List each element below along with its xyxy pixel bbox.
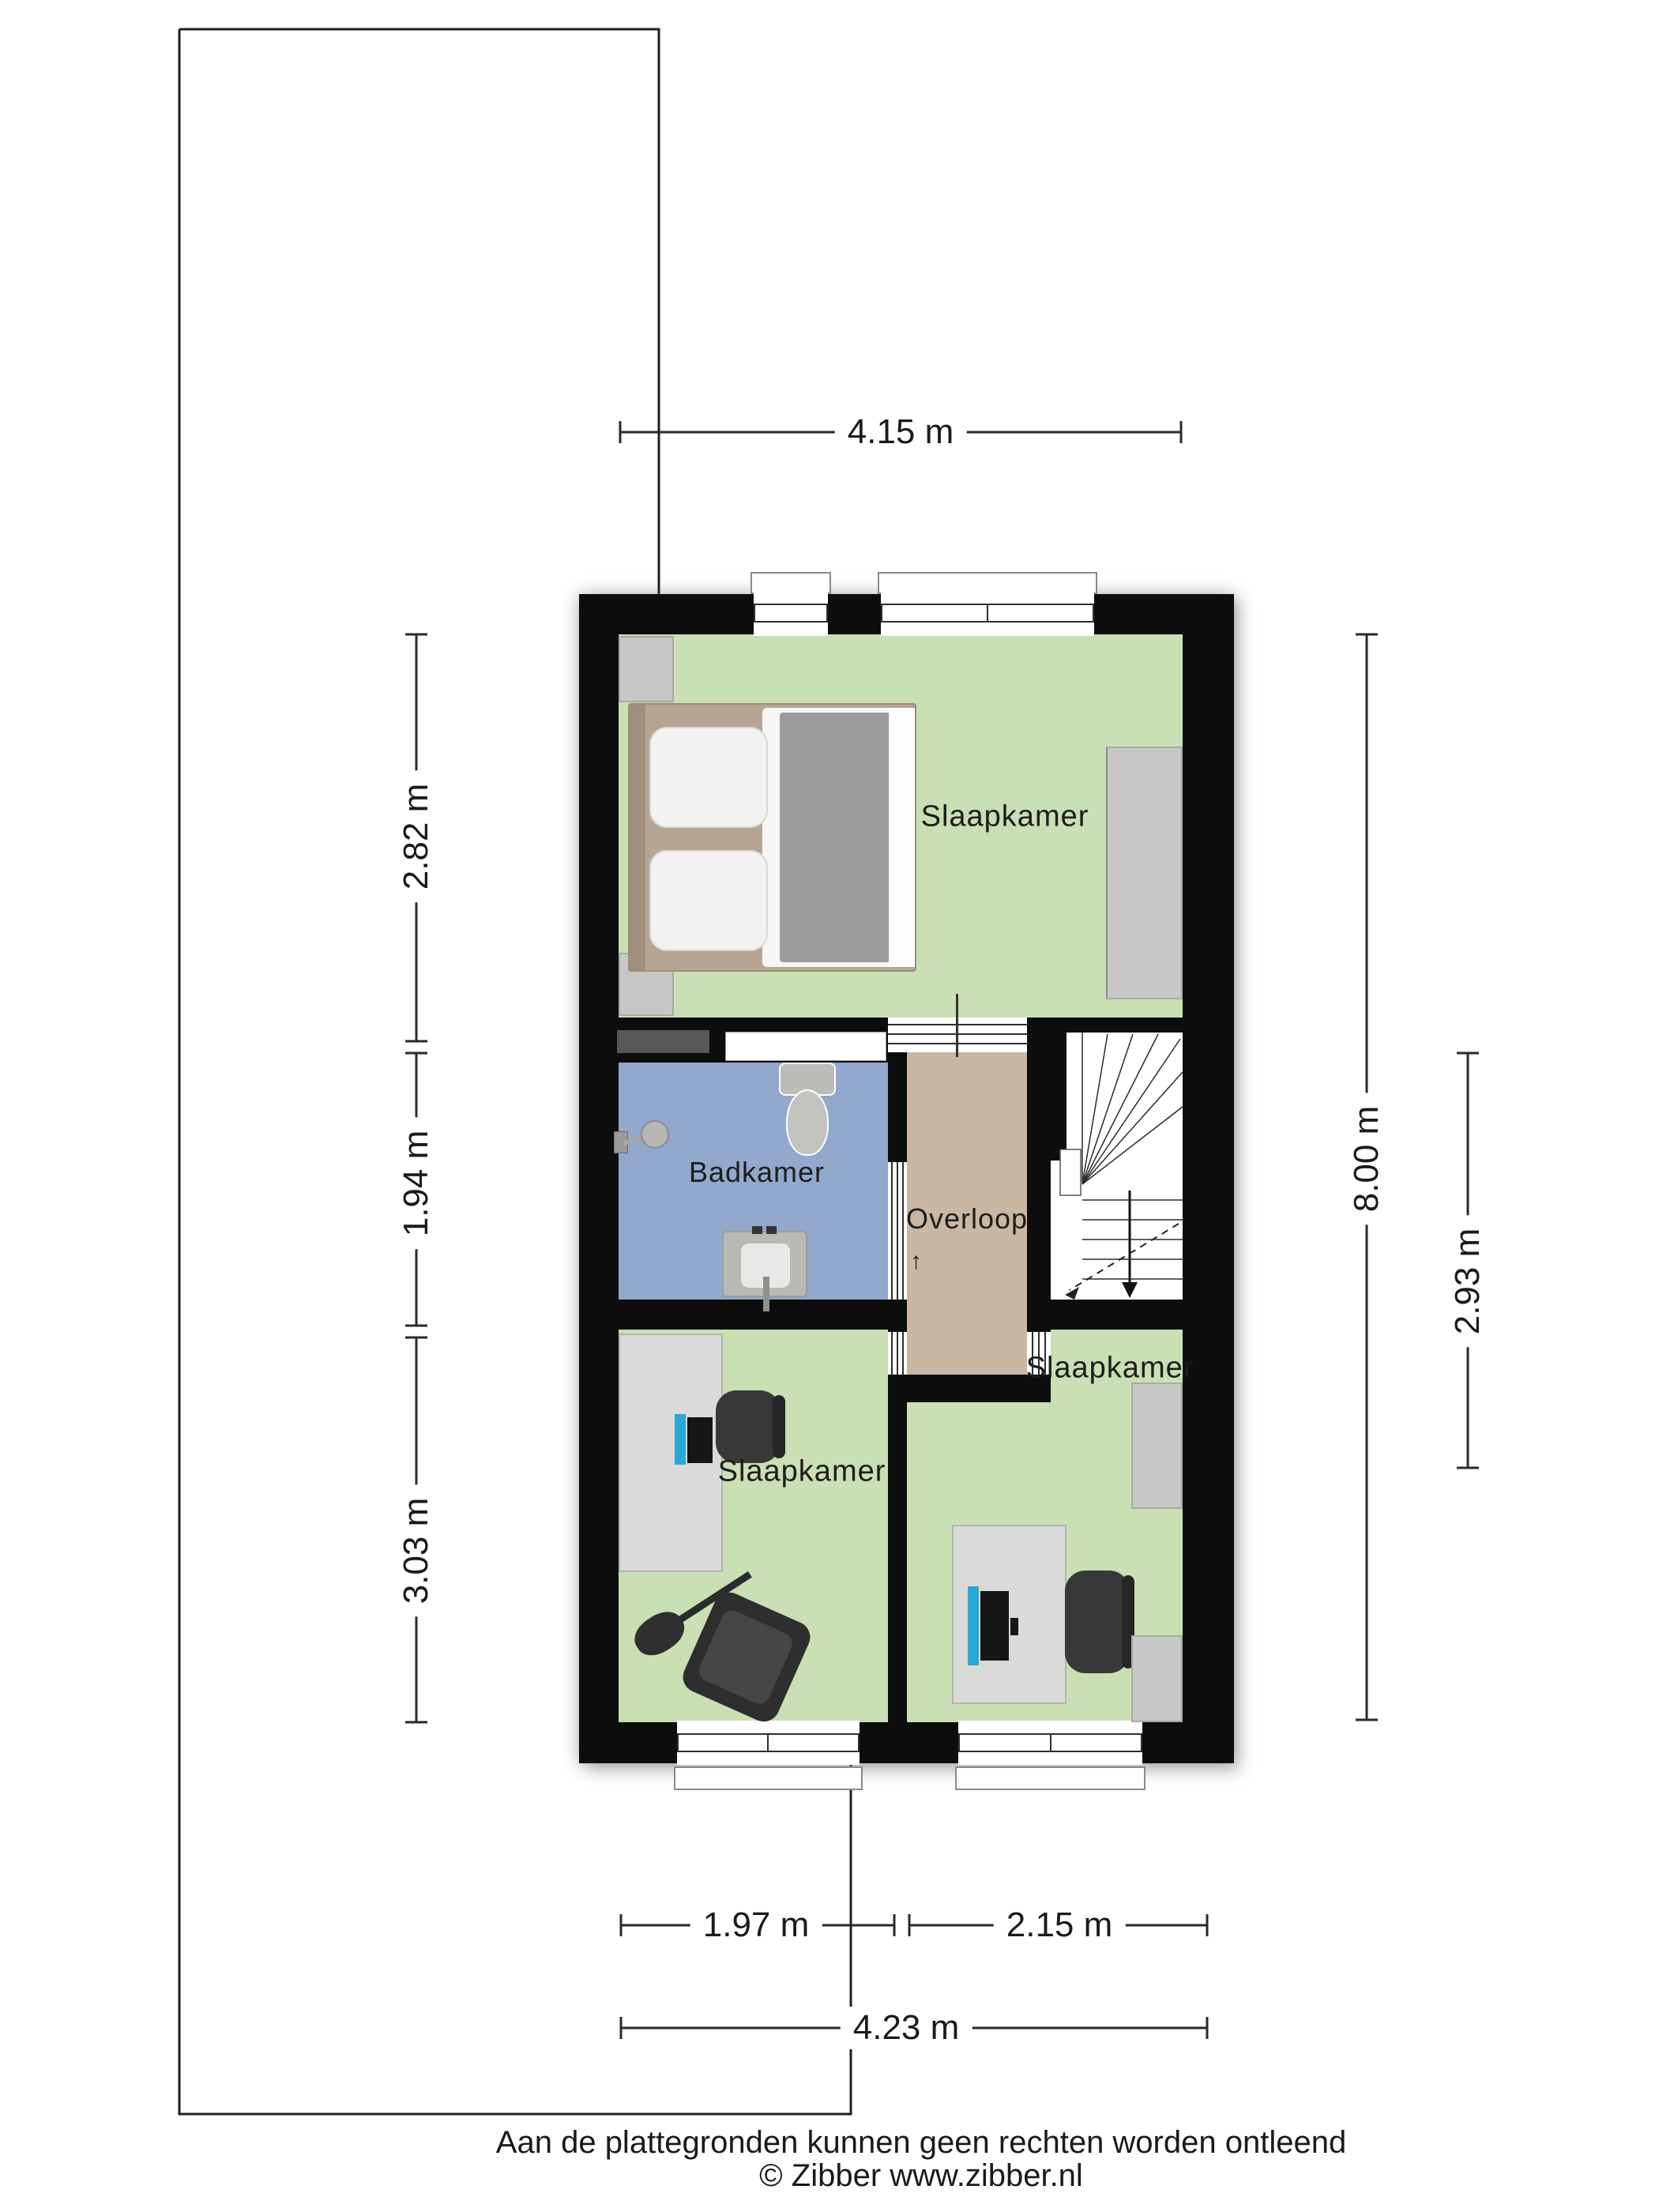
- door-bathroom: [888, 1162, 907, 1300]
- bed-blanket: [780, 713, 890, 962]
- office-chair-right: [1065, 1571, 1130, 1673]
- window-top-small: [754, 592, 828, 636]
- washbasin-tap-2: [766, 1226, 777, 1234]
- wardrobe-top-left: [619, 636, 674, 702]
- window-top-small-sill: [750, 572, 831, 594]
- dim-label-left-middle: 1.94 m: [395, 1118, 438, 1250]
- washbasin-tap-1: [752, 1226, 762, 1234]
- label-landing: Overloop: [906, 1202, 1028, 1236]
- wall-niche: [725, 1032, 886, 1061]
- shower-head: [614, 1115, 669, 1160]
- stair-treads: [1082, 1033, 1183, 1279]
- stair-newel-post: [1060, 1149, 1081, 1195]
- building-walls: Slaapkamer Badkamer Overloop Slaapkamer …: [579, 594, 1234, 1763]
- monitor-right-screen: [980, 1591, 1009, 1661]
- monitor-right-stand: [1010, 1618, 1018, 1635]
- label-bathroom: Badkamer: [689, 1156, 825, 1189]
- bed-pillow-1: [649, 727, 768, 828]
- window-bottom-left: [677, 1721, 860, 1765]
- dim-label-bottom-left: 1.97 m: [690, 1904, 822, 1947]
- dim-label-bottom-right: 2.15 m: [994, 1904, 1126, 1947]
- label-bedroom-top: Slaapkamer: [921, 800, 1089, 834]
- window-bottom-right-sill: [955, 1766, 1145, 1790]
- window-top-large: [881, 592, 1094, 636]
- dim-label-left-top: 2.82 m: [395, 771, 438, 903]
- wardrobe-right: [1106, 747, 1183, 999]
- bed-pillow-2: [649, 850, 768, 951]
- dim-label-right-partial: 2.93 m: [1446, 1216, 1489, 1348]
- floorplan-canvas: Slaapkamer Badkamer Overloop Slaapkamer …: [0, 0, 1659, 2212]
- dim-label-top-width: 4.15 m: [835, 411, 967, 453]
- monitor-left-screen: [687, 1417, 713, 1463]
- boundary-top-right: [179, 29, 659, 594]
- washbasin-drain: [763, 1277, 769, 1311]
- door-swing-tick: [956, 994, 958, 1057]
- stair-left-wall: [1051, 1033, 1066, 1161]
- door-bedroom-left: [888, 1332, 907, 1375]
- toilet-bowl: [786, 1089, 829, 1156]
- wardrobe-right-room-b: [1131, 1635, 1183, 1722]
- window-bottom-left-sill: [674, 1766, 863, 1790]
- dim-label-right-full: 8.00 m: [1345, 1093, 1388, 1225]
- monitor-left-accent: [675, 1414, 686, 1465]
- lounge-chair-cushion: [696, 1607, 796, 1707]
- double-bed: [628, 703, 916, 972]
- bed-sheet-fold: [889, 708, 915, 967]
- label-bedroom-right: Slaapkamer: [1026, 1352, 1194, 1386]
- window-top-large-sill: [878, 572, 1097, 594]
- footer-copyright: © Zibber www.zibber.nl: [759, 2158, 1083, 2194]
- office-chair-left: [716, 1390, 781, 1463]
- bed-headboard: [630, 705, 645, 970]
- staircase: [1051, 1033, 1183, 1300]
- stair-down-arrow: [1122, 1191, 1138, 1298]
- monitor-right-accent: [968, 1586, 979, 1665]
- label-bedroom-left: Slaapkamer: [718, 1455, 886, 1489]
- washbasin: [722, 1231, 807, 1297]
- stair-headroom-dashed-line: [1065, 1224, 1179, 1300]
- footer-disclaimer: Aan de plattegronden kunnen geen rechten…: [496, 2125, 1346, 2161]
- window-bottom-right: [958, 1721, 1142, 1765]
- wall-shelf: [617, 1030, 709, 1053]
- dim-label-left-bottom: 3.03 m: [395, 1485, 438, 1617]
- dim-label-bottom-full: 4.23 m: [841, 2007, 972, 2049]
- stairs-up-arrow-icon: ↑: [910, 1248, 923, 1275]
- wardrobe-right-room-a: [1131, 1382, 1183, 1509]
- shower-cone: [641, 1120, 669, 1149]
